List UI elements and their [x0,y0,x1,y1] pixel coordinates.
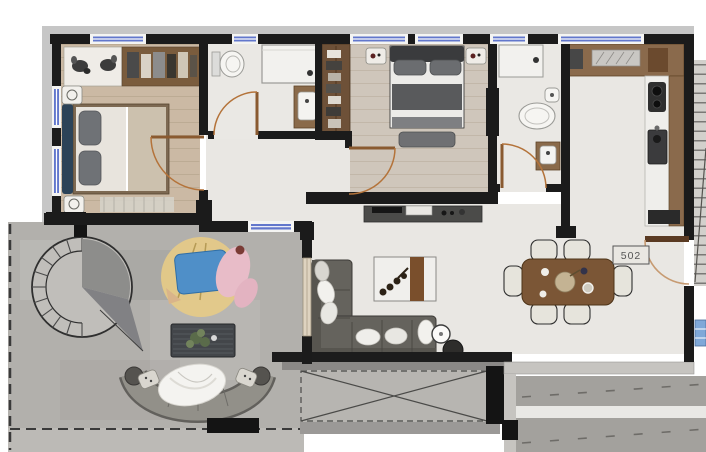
shower-1 [262,45,319,83]
wall-right-upper [684,34,694,240]
window-top-4 [415,34,463,44]
coffee-table [374,257,436,301]
unit-label: 502 [613,246,649,264]
window-terrace-wall [248,221,294,232]
lower-floor-window [695,320,706,346]
pillow [356,329,380,345]
pillow [79,111,101,145]
upper-cabinet [648,48,668,72]
window-top-5 [490,34,528,44]
wall-bedroom1-bottom [44,213,206,225]
cooktop [648,82,666,112]
nightstand-1b [64,196,84,213]
small-appliance [570,49,583,69]
pillow [430,60,461,75]
terrace-sliding-door [303,258,311,336]
toilet-1 [212,51,244,77]
pillow [79,151,101,185]
wardrobe [64,47,200,86]
floor-plan-page: 502 [0,0,706,452]
void-column [486,366,504,424]
window-left-2 [52,146,61,196]
bed-bench [399,132,455,147]
walkway-band-2 [516,418,706,452]
side-table [432,325,450,343]
wall-right-lower [684,286,694,362]
outdoor-table [171,324,235,357]
tv [372,207,402,213]
hallway-floor [206,139,310,223]
bedroom1-rug [100,197,174,212]
window-top-2 [232,34,258,44]
shower-2 [499,45,543,77]
kitchen-lower-shelf [648,210,680,224]
bed-1-headboard [62,104,73,194]
walkway-column [502,420,518,440]
wall-bathroom1-bottom [258,131,322,139]
nightstand-1a [62,86,82,104]
terrace-pier [207,418,259,433]
toilet-2 [545,88,559,102]
tv-console [364,206,482,222]
balcony-void [272,352,512,434]
kitchen-sink [648,126,667,165]
closet [322,44,350,135]
bathtub [519,103,555,129]
wall-bathroom2-bottom [546,184,561,192]
unit-number-label: 502 [621,250,642,262]
wall-bathroom2-kitchen [561,44,570,194]
window-left-1 [52,86,61,128]
window-top-6 [558,34,644,44]
window-top-1 [90,34,146,44]
wall-bedroom1-right-upper [199,44,208,135]
bed-2-duvet [392,84,462,110]
wall-living-left-lower [302,336,312,364]
nightstand-2a [366,48,386,64]
window-top-3 [350,34,408,44]
pillow [385,328,407,344]
wall-bedroom2-bottom [306,192,498,204]
wall-bathroom1-right [315,44,322,139]
floor-plan: 502 [0,0,706,452]
nightstand-2b [466,48,486,64]
wall-bedroom2-left [345,131,352,148]
pillow [394,60,426,75]
